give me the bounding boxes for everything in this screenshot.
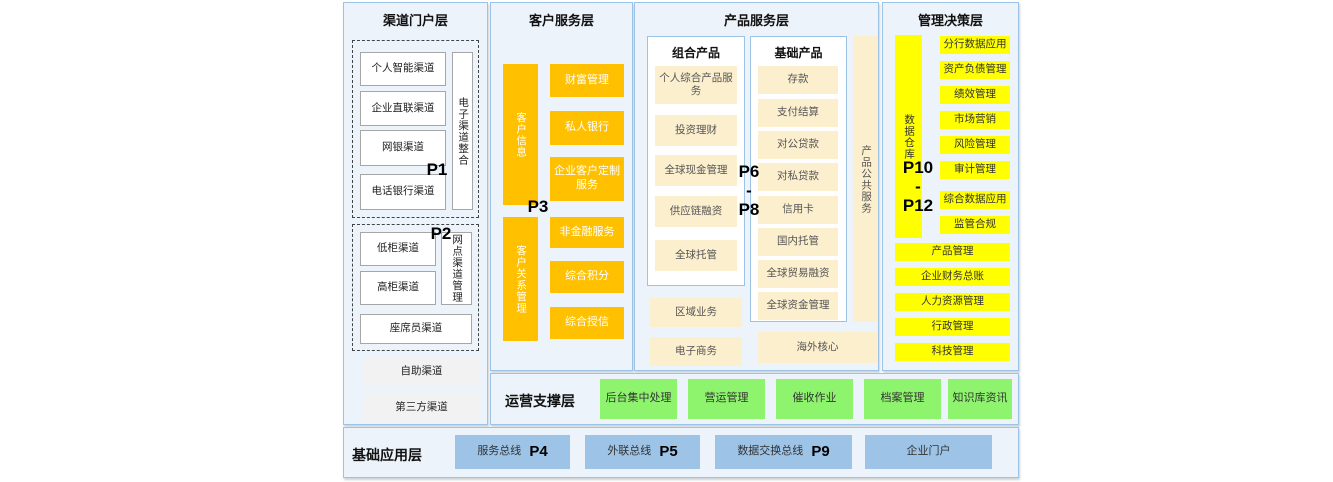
- management-box: 绩效管理: [940, 86, 1010, 104]
- management-box: 风险管理: [940, 136, 1010, 154]
- p6-p8-marker: P6 - P8: [733, 162, 765, 219]
- channel-box: 高柜渠道: [360, 271, 436, 305]
- enterprise-portal-label: 企业门户: [907, 445, 951, 459]
- product-layer-title: 产品服务层: [634, 10, 879, 29]
- channel-box: 个人智能渠道: [360, 52, 446, 86]
- agent-channel-box: 座席员渠道: [360, 314, 472, 344]
- combo-product-box: 个人综合产品服务: [655, 66, 737, 104]
- basic-product-title: 基础产品: [750, 44, 847, 61]
- channel-box: 电话银行渠道: [360, 174, 446, 210]
- operation-box: 知识库资讯: [948, 379, 1012, 419]
- combo-product-box: 供应链融资: [655, 196, 737, 227]
- management-wide-box: 产品管理: [895, 243, 1010, 261]
- basic-product-box: 对私贷款: [758, 163, 838, 191]
- basic-product-box: 全球贸易融资: [758, 260, 838, 288]
- management-layer-title: 管理决策层: [882, 10, 1019, 29]
- p8-label: P8: [733, 200, 765, 219]
- customer-service-box: 综合积分: [550, 261, 624, 293]
- channel-layer-title: 渠道门户层: [343, 10, 488, 29]
- operation-box: 后台集中处理: [600, 379, 677, 419]
- external-bus-box: 外联总线 P5: [585, 435, 700, 469]
- basic-product-box: 对公贷款: [758, 131, 838, 159]
- p3-marker: P3: [518, 197, 558, 216]
- overseas-core-box: 海外核心: [758, 332, 877, 363]
- p12-label: P12: [895, 196, 941, 215]
- operation-box: 催收作业: [776, 379, 853, 419]
- customer-layer-title: 客户服务层: [490, 10, 633, 29]
- customer-service-box: 企业客户定制服务: [550, 157, 624, 201]
- operation-layer-title: 运营支撑层: [505, 391, 575, 411]
- external-bus-label: 外联总线: [607, 445, 651, 459]
- customer-service-box: 综合授信: [550, 307, 624, 339]
- basic-product-box: 信用卡: [758, 196, 838, 224]
- combo-product-title: 组合产品: [647, 44, 745, 61]
- management-box: 分行数据应用: [940, 36, 1010, 54]
- channel-box: 企业直联渠道: [360, 91, 446, 126]
- p9-marker: P9: [811, 443, 829, 462]
- basic-product-box: 支付结算: [758, 99, 838, 127]
- combo-product-box: 全球现金管理: [655, 155, 737, 186]
- basic-product-box: 存款: [758, 66, 838, 94]
- management-box: 市场营销: [940, 111, 1010, 129]
- customer-info-bar: 客户信息: [503, 64, 538, 205]
- p10-p12-marker: P10 - P12: [895, 158, 941, 215]
- management-wide-box: 人力资源管理: [895, 293, 1010, 311]
- regional-business-box: 区域业务: [650, 298, 742, 327]
- customer-relationship-bar: 客户关系管理: [503, 217, 538, 341]
- customer-service-box: 财富管理: [550, 64, 624, 97]
- p1-marker: P1: [420, 160, 454, 179]
- banking-architecture-diagram: 渠道门户层 个人智能渠道 企业直联渠道 网银渠道 电话银行渠道 电子渠道整合 P…: [0, 0, 1333, 482]
- management-box: 监管合规: [940, 216, 1010, 234]
- operation-box: 档案管理: [864, 379, 941, 419]
- customer-service-box: 非金融服务: [550, 217, 624, 248]
- combo-product-box: 全球托管: [655, 240, 737, 271]
- product-public-service-bar: 产品公共服务: [853, 36, 878, 322]
- third-party-channel-box: 第三方渠道: [363, 393, 480, 422]
- p-range-dash: -: [895, 177, 941, 196]
- basic-product-box: 国内托管: [758, 228, 838, 256]
- service-bus-box: 服务总线 P4: [455, 435, 570, 469]
- management-box: 资产负债管理: [940, 61, 1010, 79]
- self-service-channel-box: 自助渠道: [363, 357, 480, 386]
- p6-label: P6: [733, 162, 765, 181]
- management-box: 综合数据应用: [940, 191, 1010, 209]
- combo-product-box: 投资理财: [655, 115, 737, 146]
- p2-marker: P2: [424, 224, 458, 243]
- enterprise-portal-box: 企业门户: [865, 435, 992, 469]
- basic-product-box: 全球资金管理: [758, 292, 838, 320]
- p10-label: P10: [895, 158, 941, 177]
- management-box: 审计管理: [940, 161, 1010, 179]
- service-bus-label: 服务总线: [477, 445, 521, 459]
- p4-marker: P4: [529, 443, 547, 462]
- data-exchange-bus-label: 数据交换总线: [737, 445, 803, 459]
- management-wide-box: 科技管理: [895, 343, 1010, 361]
- management-wide-box: 行政管理: [895, 318, 1010, 336]
- electronic-channel-integration-bar: 电子渠道整合: [452, 52, 473, 210]
- ecommerce-box: 电子商务: [650, 337, 742, 366]
- data-exchange-bus-box: 数据交换总线 P9: [715, 435, 852, 469]
- operation-box: 营运管理: [688, 379, 765, 419]
- p5-marker: P5: [659, 443, 677, 462]
- p-range-dash: -: [733, 181, 765, 200]
- management-wide-box: 企业财务总账: [895, 268, 1010, 286]
- customer-service-box: 私人银行: [550, 111, 624, 145]
- foundation-layer-title: 基础应用层: [352, 445, 422, 465]
